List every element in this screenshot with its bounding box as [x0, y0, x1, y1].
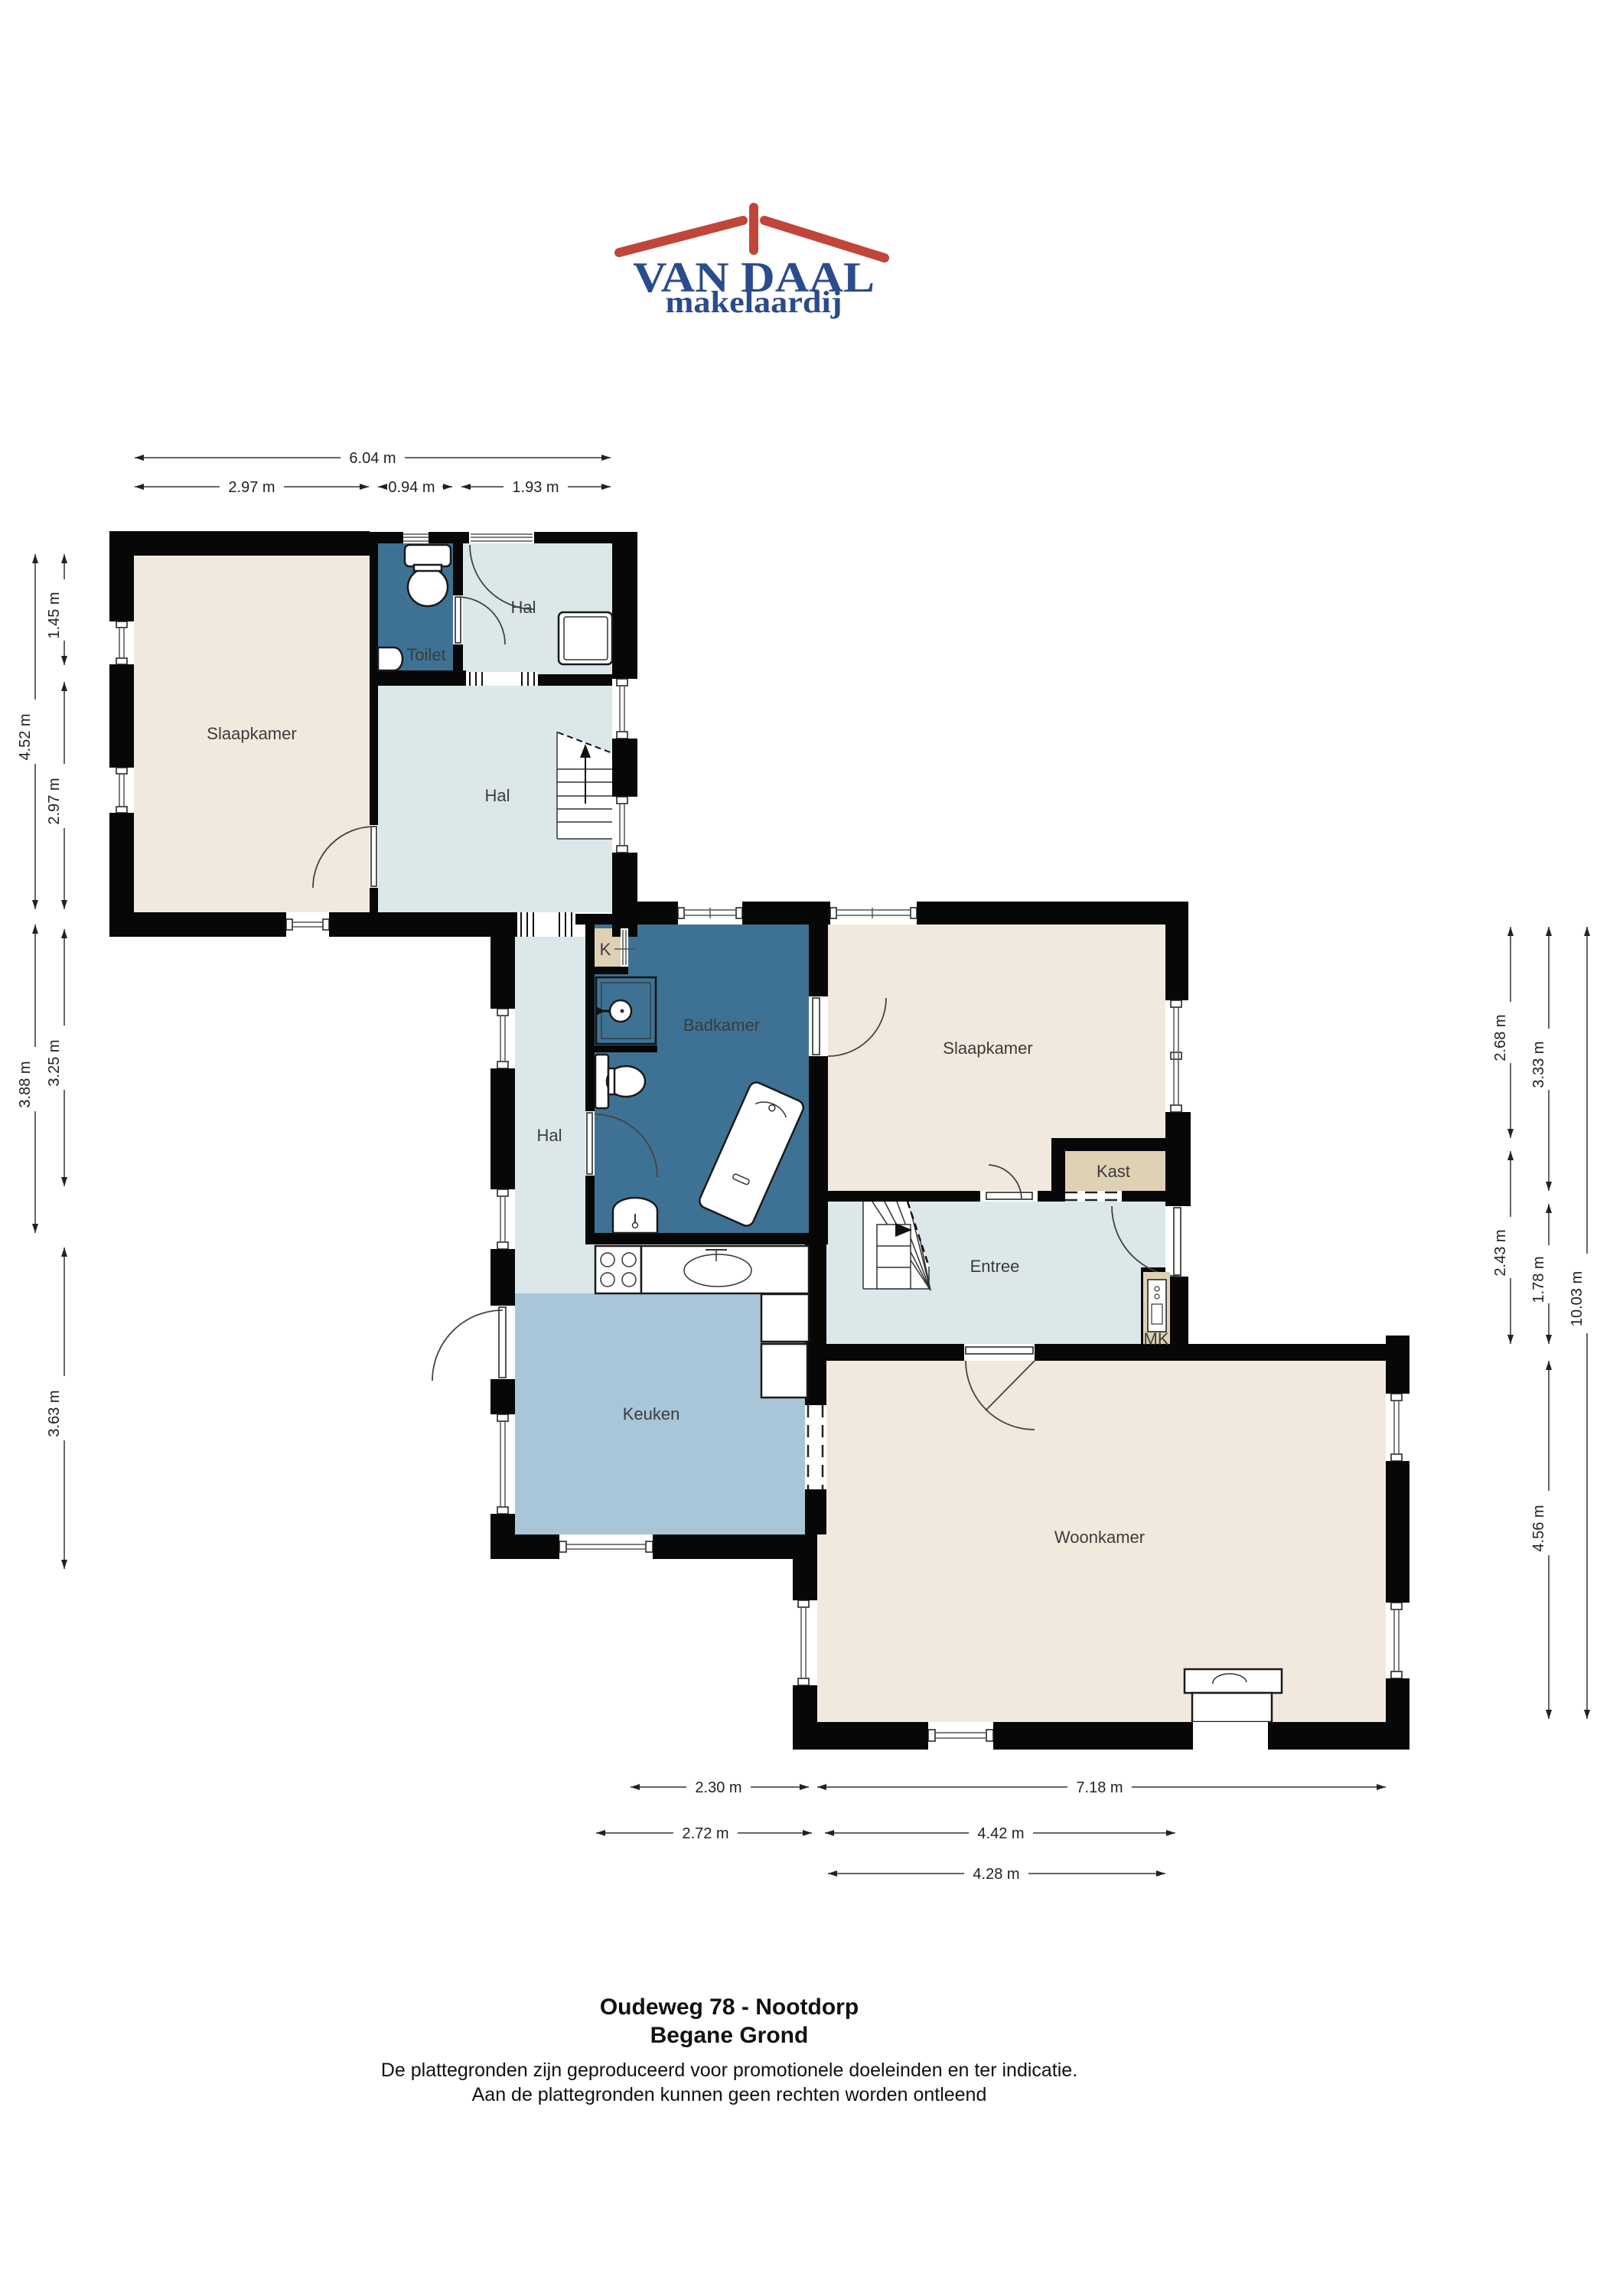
svg-text:6.04 m: 6.04 m [349, 450, 396, 467]
svg-text:Aan de plattegronden kunnen ge: Aan de plattegronden kunnen geen rechten… [472, 2084, 987, 2105]
svg-text:2.97 m: 2.97 m [228, 479, 275, 496]
svg-text:Entree: Entree [970, 1257, 1020, 1276]
svg-text:2.30 m: 2.30 m [695, 1779, 741, 1796]
svg-text:MK: MK [1144, 1329, 1169, 1349]
svg-text:Hal: Hal [510, 598, 536, 617]
svg-text:4.28 m: 4.28 m [973, 1866, 1019, 1883]
svg-text:3.33 m: 3.33 m [1530, 1041, 1547, 1088]
svg-text:1.45 m: 1.45 m [46, 592, 63, 638]
svg-text:Slaapkamer: Slaapkamer [207, 724, 296, 743]
svg-text:makelaardij: makelaardij [666, 285, 842, 319]
svg-text:Keuken: Keuken [623, 1404, 680, 1424]
svg-text:2.68 m: 2.68 m [1492, 1014, 1509, 1061]
svg-text:2.97 m: 2.97 m [46, 778, 63, 824]
svg-text:0.94 m: 0.94 m [388, 479, 435, 496]
svg-text:Kast: Kast [1097, 1162, 1130, 1181]
svg-text:Begane Grond: Begane Grond [650, 2023, 809, 2048]
svg-text:10.03 m: 10.03 m [1569, 1271, 1586, 1326]
svg-text:4.42 m: 4.42 m [977, 1825, 1024, 1842]
svg-text:7.18 m: 7.18 m [1076, 1779, 1123, 1796]
svg-text:Hal: Hal [536, 1126, 562, 1145]
svg-text:2.72 m: 2.72 m [682, 1825, 728, 1842]
svg-text:1.78 m: 1.78 m [1530, 1256, 1547, 1303]
svg-text:Toilet: Toilet [406, 645, 445, 664]
svg-text:4.52 m: 4.52 m [17, 713, 34, 760]
svg-text:2.43 m: 2.43 m [1492, 1229, 1509, 1276]
svg-text:De plattegronden zijn geproduc: De plattegronden zijn geproduceerd voor … [381, 2060, 1077, 2081]
svg-text:Hal: Hal [484, 786, 510, 805]
svg-text:Oudeweg 78 - Nootdorp: Oudeweg 78 - Nootdorp [600, 1994, 859, 2020]
svg-text:Slaapkamer: Slaapkamer [943, 1039, 1032, 1058]
svg-text:1.93 m: 1.93 m [512, 479, 559, 496]
svg-text:3.63 m: 3.63 m [46, 1390, 63, 1437]
svg-text:3.88 m: 3.88 m [17, 1061, 34, 1107]
svg-text:K: K [600, 940, 611, 959]
svg-text:Woonkamer: Woonkamer [1054, 1528, 1145, 1547]
svg-text:3.25 m: 3.25 m [46, 1039, 63, 1086]
svg-text:4.56 m: 4.56 m [1530, 1505, 1547, 1551]
svg-text:Badkamer: Badkamer [683, 1016, 760, 1035]
